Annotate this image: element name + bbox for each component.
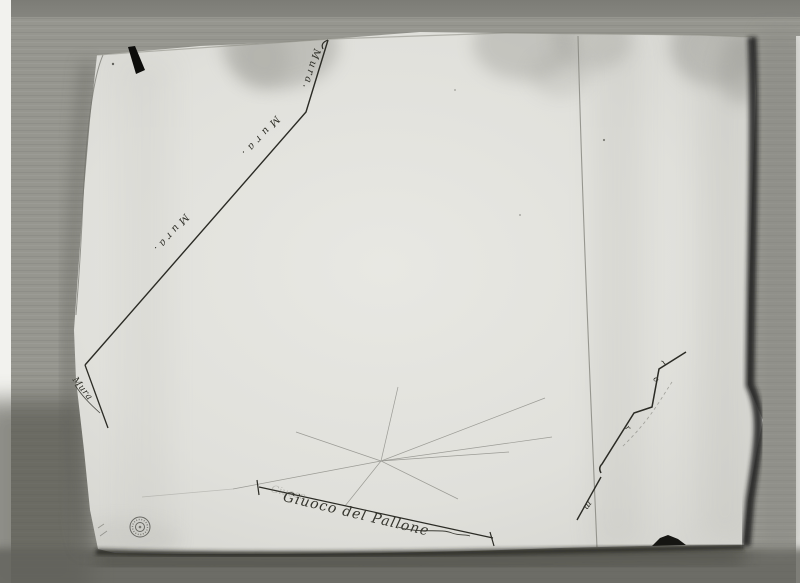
photo-artwork — [0, 0, 800, 583]
archival-photograph: Mura. Mura. Mura. Mura Giuoco Giuoco del… — [0, 0, 800, 583]
paper-sheet — [74, 32, 763, 554]
